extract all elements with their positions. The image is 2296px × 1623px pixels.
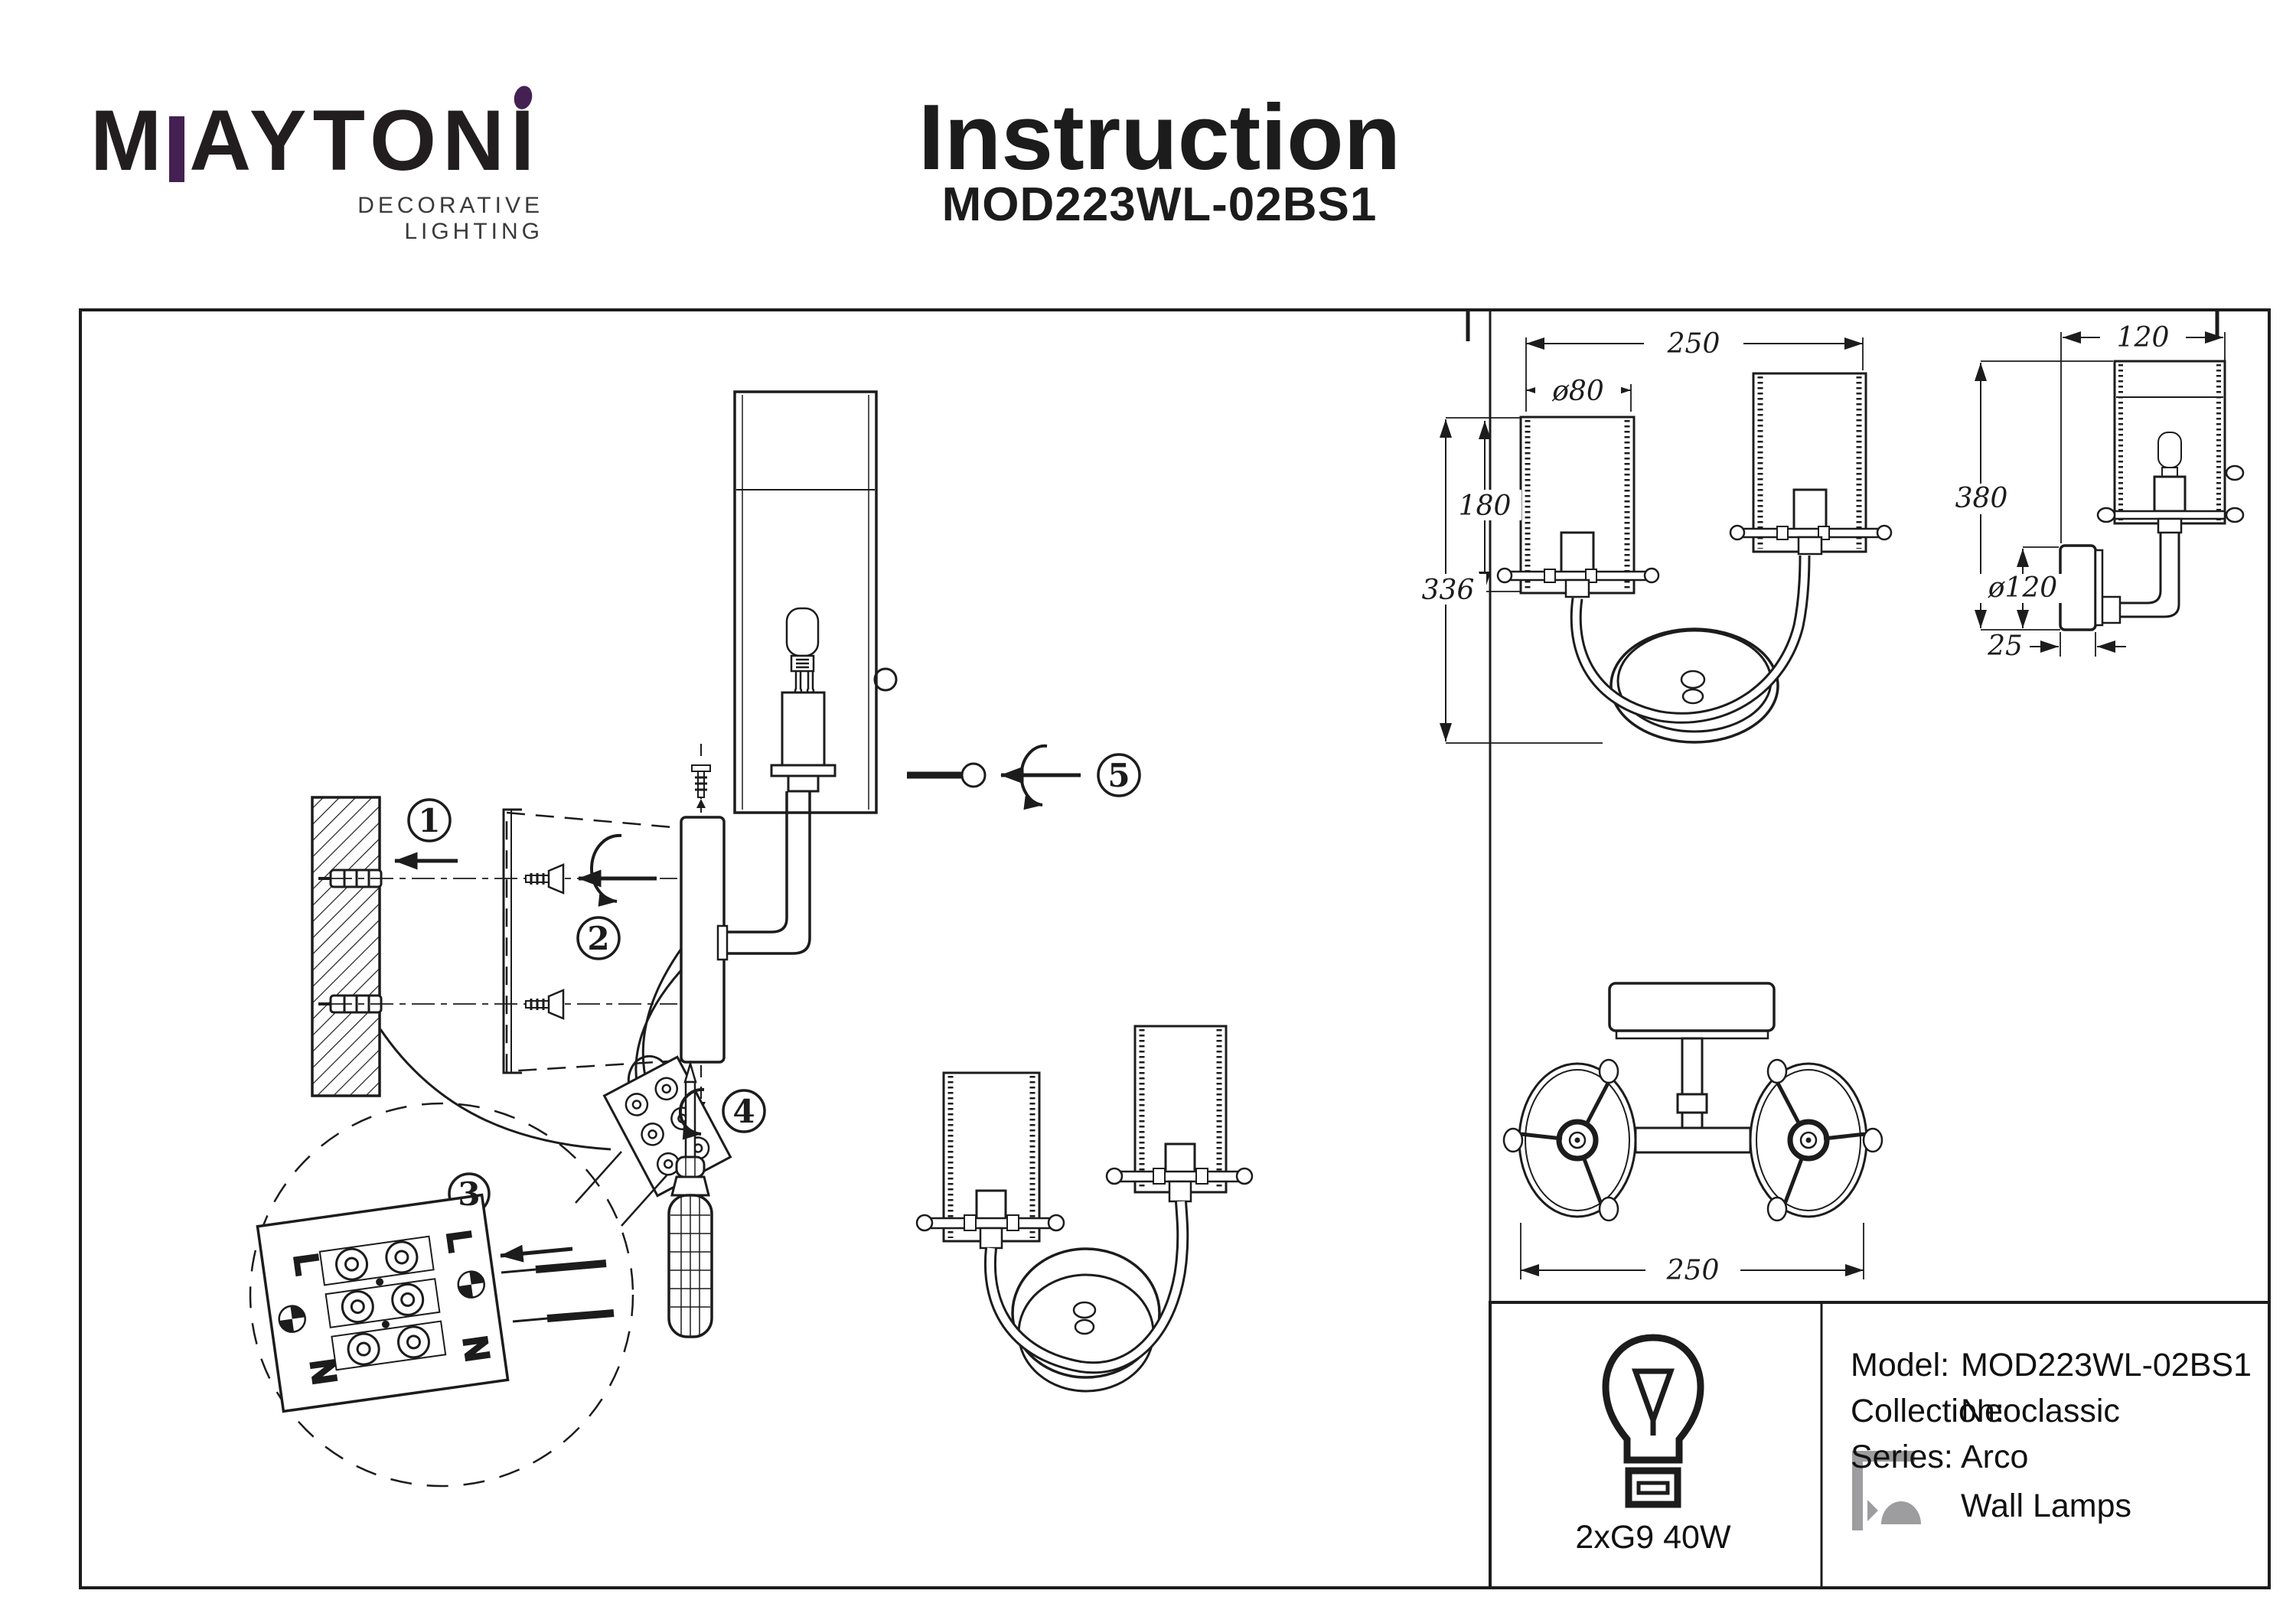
- step-numbers: 1 2 3 4 5: [418, 757, 1130, 1213]
- dim-total-height: 380: [1955, 483, 2008, 514]
- mounting-screw-icon: [526, 865, 563, 1018]
- canopy-screw-top-icon: [692, 765, 710, 808]
- dim-shade-height: 180: [1459, 490, 1512, 522]
- assembled-front-view: [917, 1026, 1252, 1391]
- top-dimensions: 250: [1521, 1223, 1864, 1286]
- step5-indicator: [907, 746, 1140, 805]
- terminal-label-n-left: N: [303, 1357, 344, 1387]
- shade-set-screw-icon: [875, 669, 896, 690]
- terminal-label-n-right: N: [456, 1334, 497, 1363]
- spec-series-label: Series:: [1851, 1439, 1953, 1476]
- lamp-socket: [771, 693, 835, 791]
- plate-top: [1609, 983, 1774, 1031]
- assembly-figure: L N L N: [250, 392, 1252, 1486]
- dim-top-width: 250: [1666, 1255, 1720, 1286]
- technical-drawing: L N L N: [0, 0, 2296, 1623]
- step1-number: 1: [418, 802, 440, 839]
- wiring-detail: L N L N: [250, 1103, 667, 1486]
- lamp-arm: [718, 791, 810, 960]
- g9-bulb-icon: [787, 608, 818, 694]
- spec-series-value: Arco: [1961, 1439, 2028, 1476]
- wall-plate-ring: [1611, 629, 1778, 742]
- ball-screw-icon: [962, 764, 985, 787]
- terminal-block-detail: L N L N: [257, 1195, 507, 1412]
- spec-collection-value: Neoclassic: [1961, 1393, 2120, 1430]
- spec-model-value: MOD223WL-02BS1: [1961, 1347, 2252, 1384]
- dim-plate-thickness: 25: [1987, 631, 2023, 662]
- step5-number: 5: [1107, 757, 1130, 794]
- wall-section: [312, 797, 381, 1096]
- exploded-lamp: [718, 392, 896, 960]
- rotate-arrow-icon: [592, 836, 621, 901]
- left-shade-top: [1504, 1060, 1636, 1221]
- dimension-views: 250 ø80 180 336: [1410, 322, 2243, 1286]
- dim-side-depth: 120: [2117, 322, 2170, 354]
- dim-fixture-height: 336: [1422, 575, 1475, 606]
- dim-shade-diameter: ø80: [1551, 376, 1603, 407]
- dim-plate-diameter: ø120: [1988, 572, 2057, 604]
- step4-number: 4: [732, 1093, 755, 1130]
- side-view: 120 380 ø120 25: [1942, 322, 2243, 662]
- detail-wires: [501, 1249, 614, 1322]
- bulb-spec: 2xG9 40W: [1561, 1519, 1745, 1556]
- step2-number: 2: [587, 920, 609, 957]
- step3-number: 3: [458, 1175, 480, 1213]
- arm-side: [2102, 533, 2179, 623]
- front-view: 250 ø80 180 336: [1410, 328, 1891, 743]
- insert-arrow-icon: [501, 1249, 572, 1256]
- top-view: 250: [1504, 983, 1882, 1286]
- right-shade-top: [1750, 1060, 1882, 1221]
- dim-front-width: 250: [1667, 328, 1720, 360]
- spec-model-label: Model:: [1851, 1347, 1949, 1384]
- instruction-sheet: MAYTONI DECORATIVE LIGHTING Instruction …: [0, 0, 2296, 1623]
- arm-bar-top: [1636, 1128, 1750, 1152]
- spec-type-value: Wall Lamps: [1961, 1488, 2131, 1525]
